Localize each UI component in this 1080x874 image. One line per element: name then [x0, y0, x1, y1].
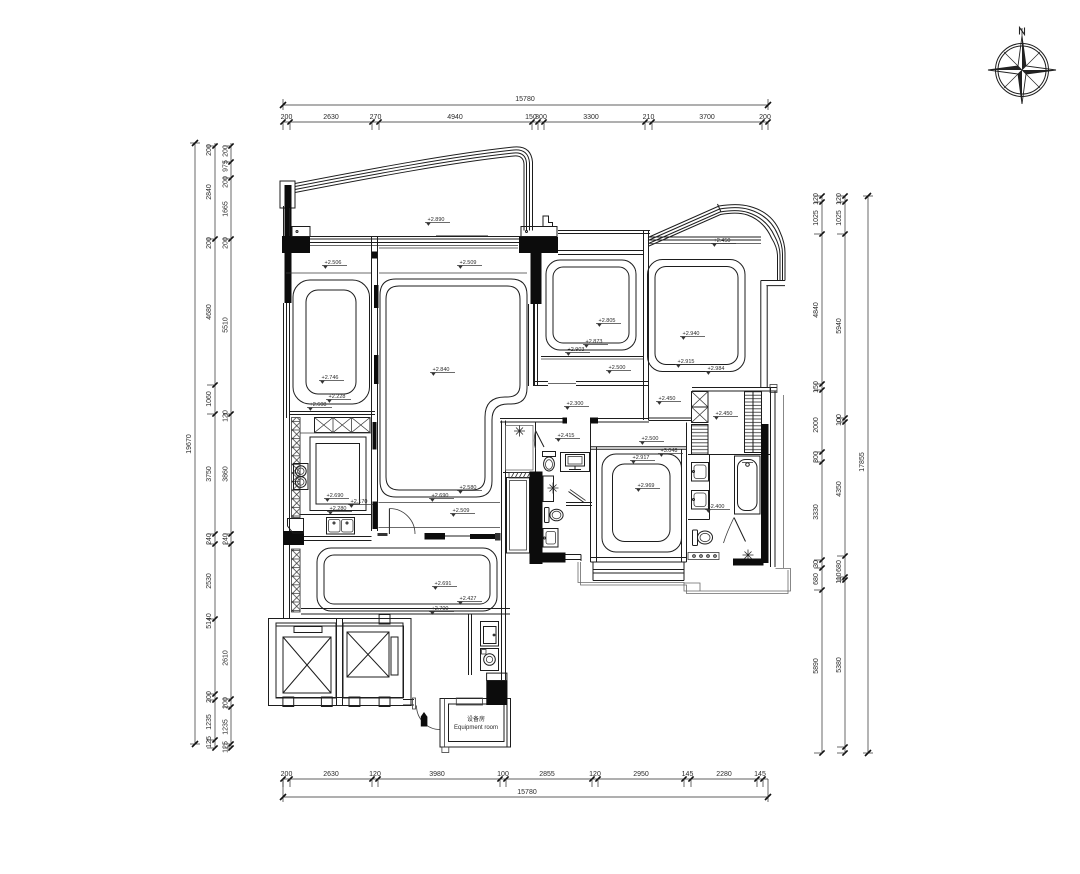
svg-text:975: 975 [223, 160, 230, 172]
svg-text:4840: 4840 [813, 302, 820, 318]
svg-text:17855: 17855 [859, 452, 866, 472]
svg-text:200: 200 [223, 697, 230, 709]
svg-text:3860: 3860 [223, 466, 230, 482]
svg-text:200: 200 [206, 691, 213, 703]
svg-text:30: 30 [813, 560, 820, 568]
svg-text:5510: 5510 [223, 317, 230, 333]
svg-text:125: 125 [223, 741, 230, 753]
svg-text:120: 120 [813, 193, 820, 205]
svg-text:3750: 3750 [206, 466, 213, 482]
svg-text:200: 200 [206, 237, 213, 249]
svg-text:1025: 1025 [813, 210, 820, 226]
svg-text:3980: 3980 [429, 771, 445, 778]
svg-text:120: 120 [223, 410, 230, 422]
svg-text:5140: 5140 [206, 613, 213, 629]
svg-text:3700: 3700 [699, 114, 715, 121]
svg-text:5890: 5890 [813, 658, 820, 674]
svg-text:15780: 15780 [515, 96, 535, 103]
svg-text:120: 120 [836, 193, 843, 205]
svg-text:15780: 15780 [517, 789, 537, 796]
svg-text:200: 200 [281, 114, 293, 121]
svg-text:5380: 5380 [836, 657, 843, 673]
svg-text:300: 300 [813, 451, 820, 463]
svg-text:5940: 5940 [836, 318, 843, 334]
svg-text:100: 100 [836, 414, 843, 426]
svg-text:4940: 4940 [447, 114, 463, 121]
svg-text:19670: 19670 [186, 434, 193, 454]
svg-text:1665: 1665 [223, 201, 230, 217]
svg-text:200: 200 [223, 176, 230, 188]
svg-text:210: 210 [643, 114, 655, 121]
svg-text:2630: 2630 [323, 114, 339, 121]
svg-text:2610: 2610 [223, 650, 230, 666]
svg-text:1235: 1235 [206, 714, 213, 730]
svg-text:2630: 2630 [323, 771, 339, 778]
svg-text:200: 200 [206, 144, 213, 156]
svg-text:120: 120 [369, 771, 381, 778]
svg-text:145: 145 [754, 771, 766, 778]
svg-text:240: 240 [206, 533, 213, 545]
svg-text:4680: 4680 [206, 304, 213, 320]
svg-text:3330: 3330 [813, 504, 820, 520]
svg-text:200: 200 [223, 145, 230, 157]
svg-text:2530: 2530 [206, 573, 213, 589]
svg-text:100: 100 [497, 771, 509, 778]
svg-text:设备房: 设备房 [467, 715, 485, 723]
svg-text:2950: 2950 [633, 771, 649, 778]
svg-text:2855: 2855 [539, 771, 555, 778]
svg-text:240: 240 [223, 533, 230, 545]
svg-text:1235: 1235 [223, 719, 230, 735]
svg-text:1060: 1060 [206, 391, 213, 407]
svg-text:1025: 1025 [836, 210, 843, 226]
svg-text:200: 200 [223, 237, 230, 249]
svg-text:800: 800 [535, 114, 547, 121]
svg-text:Equipment room: Equipment room [454, 725, 498, 731]
svg-text:2000: 2000 [813, 417, 820, 433]
svg-text:2280: 2280 [716, 771, 732, 778]
svg-text:2840: 2840 [206, 184, 213, 200]
svg-text:4350: 4350 [836, 481, 843, 497]
svg-text:3300: 3300 [583, 114, 599, 121]
svg-text:125: 125 [206, 736, 213, 748]
svg-text:680: 680 [813, 573, 820, 585]
svg-text:680: 680 [836, 560, 843, 572]
svg-text:200: 200 [759, 114, 771, 121]
svg-text:120: 120 [589, 771, 601, 778]
svg-text:150: 150 [813, 381, 820, 393]
svg-text:270: 270 [370, 114, 382, 121]
svg-text:110: 110 [836, 572, 843, 583]
svg-text:200: 200 [281, 771, 293, 778]
svg-text:145: 145 [682, 771, 694, 778]
